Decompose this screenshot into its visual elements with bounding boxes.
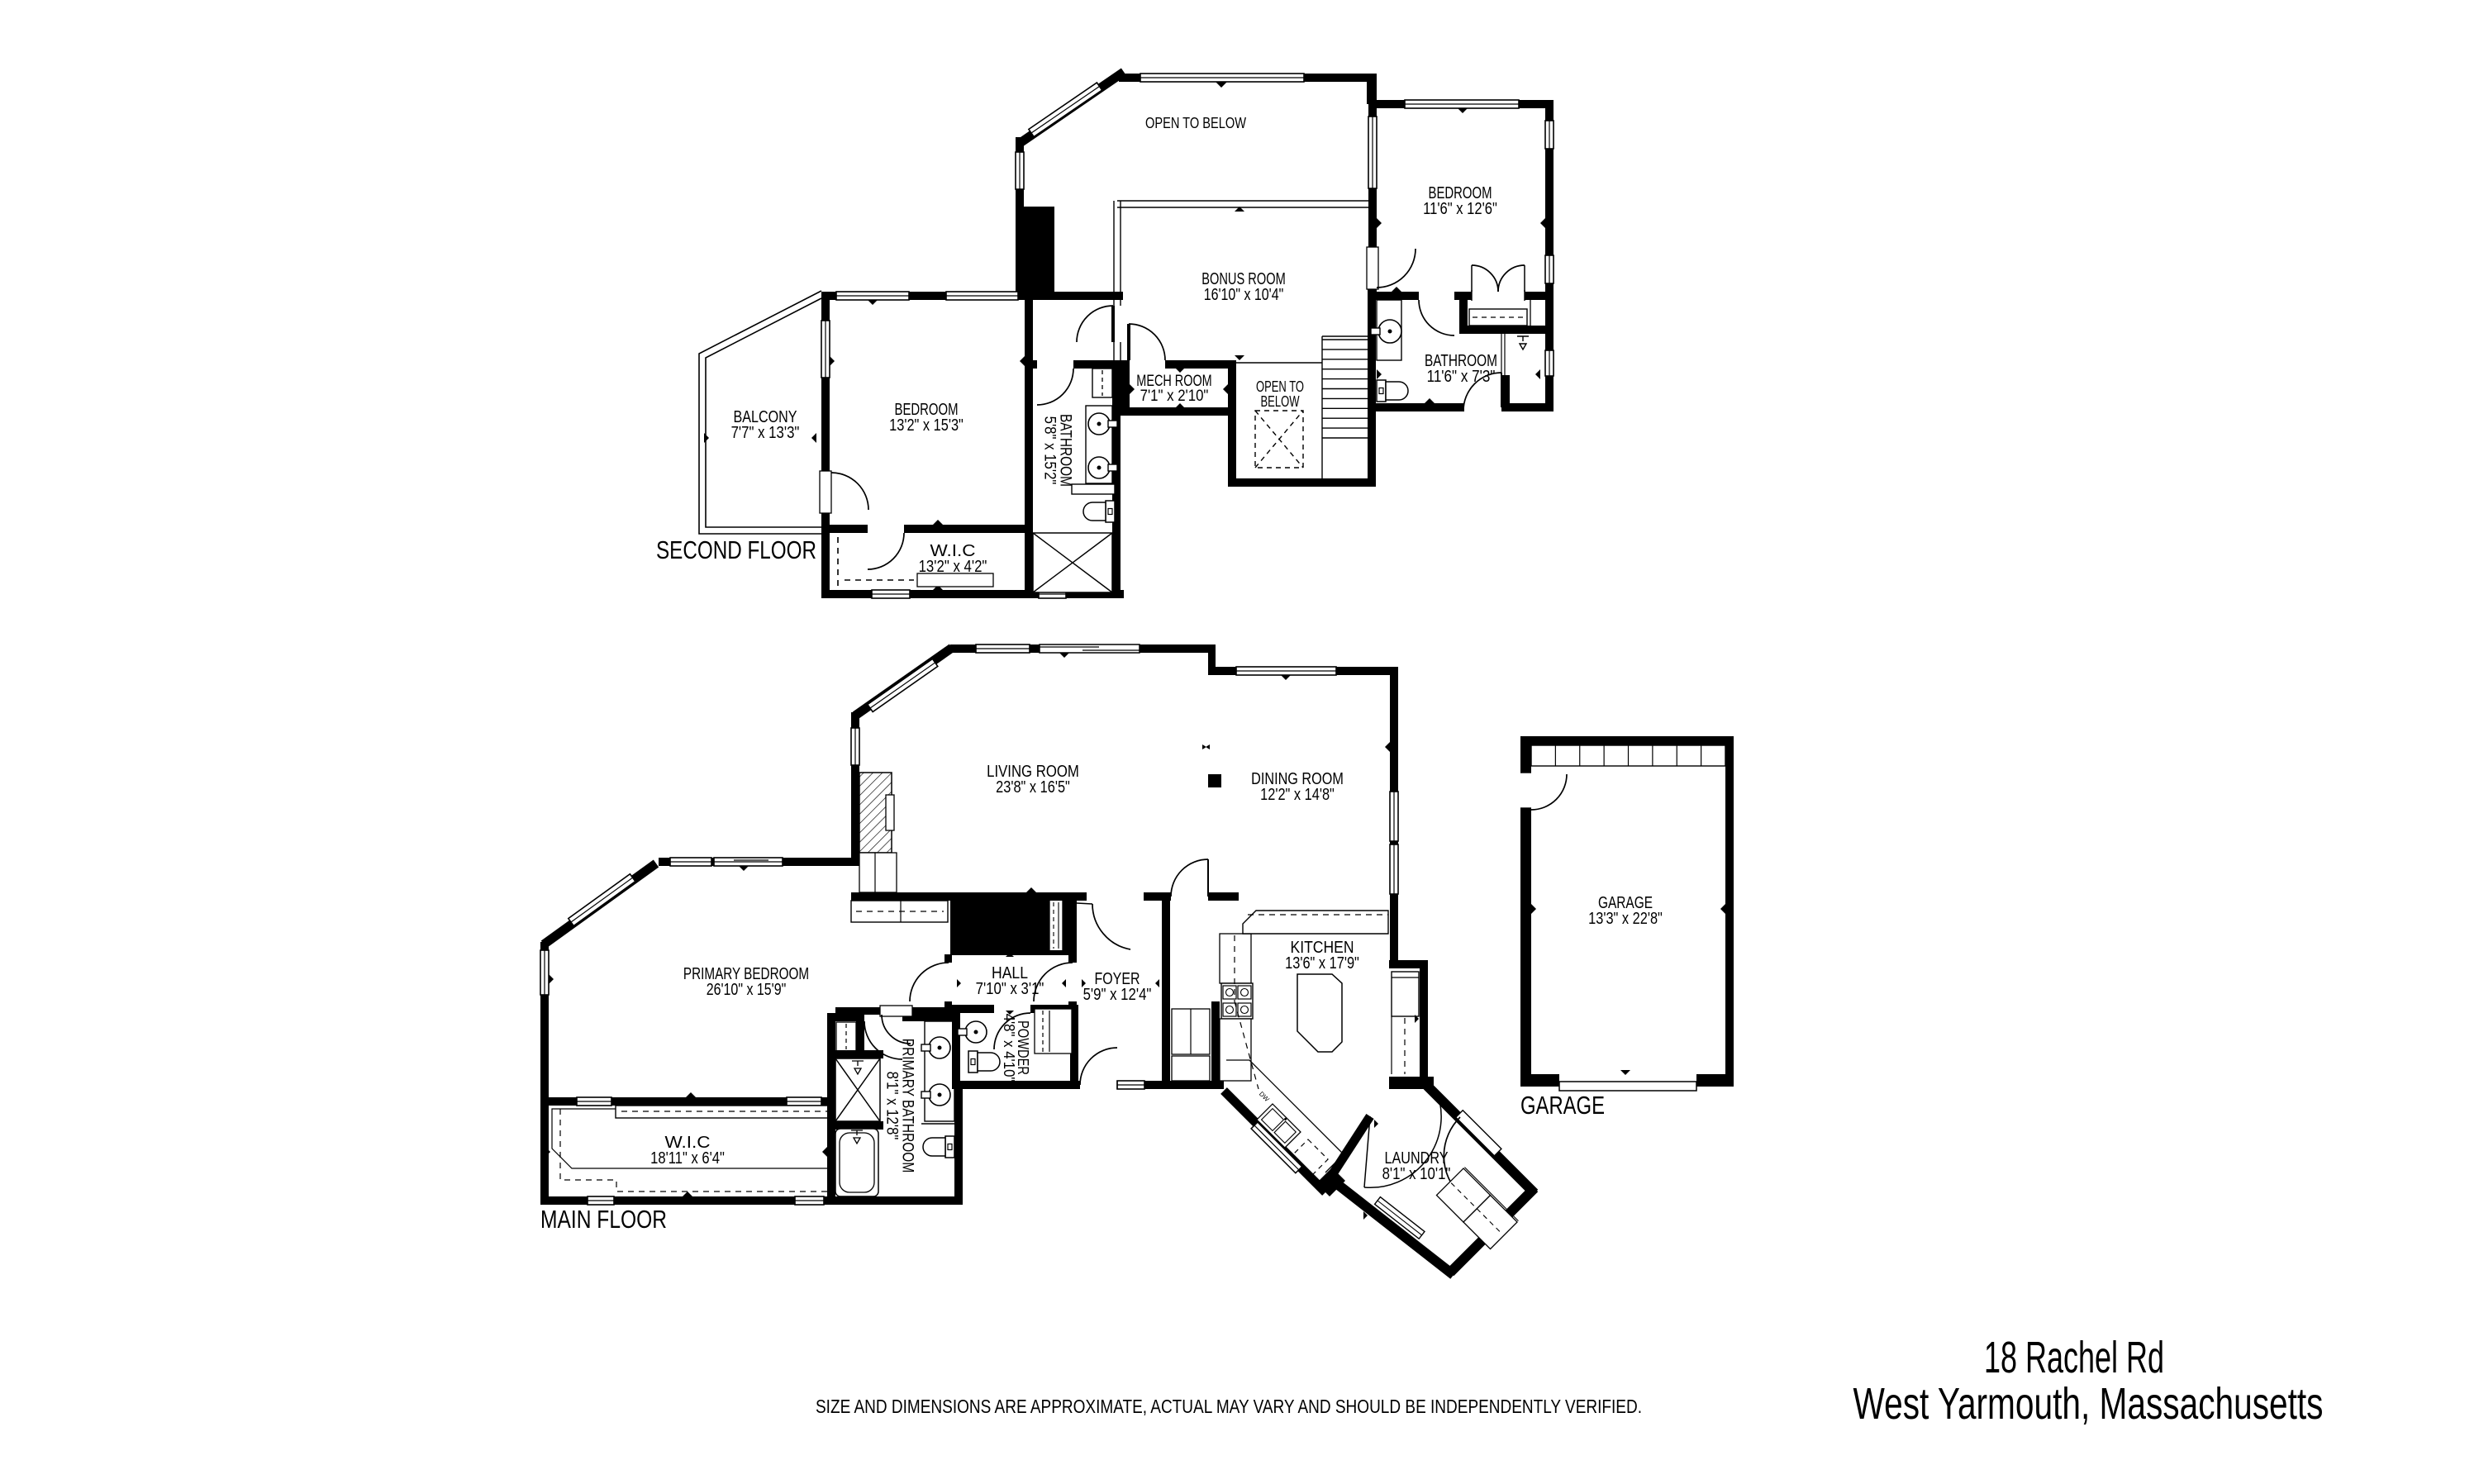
svg-text:BELOW: BELOW [1261,393,1300,410]
svg-text:13'3" x 22'8": 13'3" x 22'8" [1588,910,1663,928]
svg-text:18 Rachel Rd: 18 Rachel Rd [1984,1333,2164,1382]
svg-text:SECOND FLOOR: SECOND FLOOR [656,535,816,564]
svg-text:11'6" x 12'6": 11'6" x 12'6" [1423,200,1497,218]
svg-text:7'7" x 13'3": 7'7" x 13'3" [731,424,800,442]
svg-text:7'10" x 3'1": 7'10" x 3'1" [976,980,1044,998]
svg-text:26'10" x 15'9": 26'10" x 15'9" [707,981,787,999]
svg-text:5'8" x 15'2": 5'8" x 15'2" [1041,416,1059,485]
svg-text:GARAGE: GARAGE [1520,1091,1605,1120]
svg-text:OPEN TO BELOW: OPEN TO BELOW [1145,115,1246,131]
svg-text:4'8" x 4'10": 4'8" x 4'10" [1001,1014,1017,1082]
svg-text:8'1" x 12'8": 8'1" x 12'8" [883,1072,902,1140]
svg-text:7'1" x 2'10": 7'1" x 2'10" [1140,388,1209,405]
svg-text:23'8" x 16'5": 23'8" x 16'5" [996,778,1070,797]
svg-text:8'1" x 10'1": 8'1" x 10'1" [1382,1165,1451,1183]
svg-text:5'9" x 12'4": 5'9" x 12'4" [1083,986,1152,1004]
svg-text:11'6" x 7'3": 11'6" x 7'3" [1427,368,1496,386]
svg-text:13'6" x 17'9": 13'6" x 17'9" [1285,954,1359,973]
svg-text:18'11" x 6'4": 18'11" x 6'4" [650,1149,725,1168]
svg-text:OPEN TO: OPEN TO [1256,378,1304,395]
svg-text:SIZE AND DIMENSIONS ARE APPROX: SIZE AND DIMENSIONS ARE APPROXIMATE, ACT… [816,1396,1642,1417]
svg-text:13'2" x 4'2": 13'2" x 4'2" [919,558,987,576]
svg-text:MAIN FLOOR: MAIN FLOOR [540,1205,667,1234]
svg-text:13'2" x 15'3": 13'2" x 15'3" [889,416,964,435]
svg-text:West Yarmouth, Massachusetts: West Yarmouth, Massachusetts [1853,1379,2324,1429]
svg-text:12'2" x 14'8": 12'2" x 14'8" [1260,786,1335,804]
svg-text:16'10" x 10'4": 16'10" x 10'4" [1204,286,1284,304]
